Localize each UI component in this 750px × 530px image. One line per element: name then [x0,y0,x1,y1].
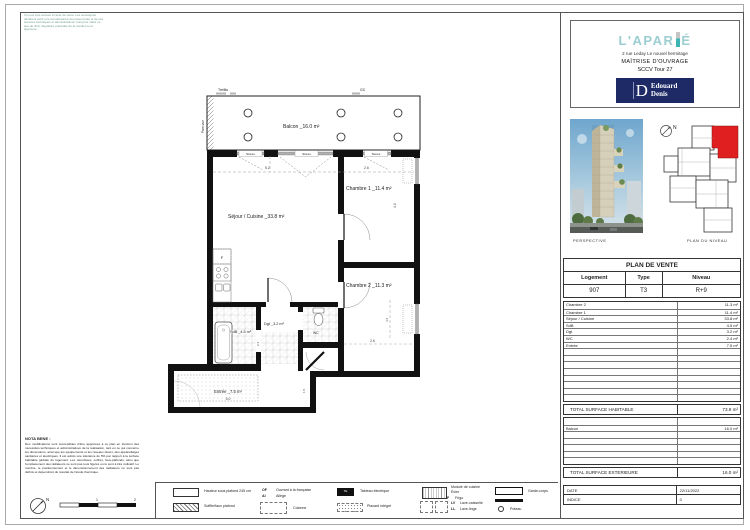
stores-label-1: Stores [246,152,255,156]
sdb-label: SdB _4.5 m² [230,330,252,334]
pare-vue-label: Pare-vue [201,120,205,133]
treillis-label: Treillis [218,88,228,92]
legend-gardecorps-icon [495,487,523,495]
total-exterior-value: 16.0 m² [678,470,740,475]
niveau-value: R+9 [663,285,740,297]
total-habitable-value: 73.9 m² [678,407,740,412]
type-value: T3 [626,285,663,297]
legend-gardecorps-bar-icon [495,499,523,502]
indice-value: 0 [677,497,740,502]
builder-initial: D [633,82,648,99]
dim-ch2-w: 2.6 [370,339,375,343]
niveau-north: N [673,125,677,131]
table-row: Chambre 111.4 m² [564,309,740,316]
table-row-empty [564,375,740,382]
table-row-empty [564,451,740,458]
table-row-empty [564,394,740,401]
perspective-label: PERSPECTIVE [573,238,607,243]
table-header-row: Logement Type Niveau [563,272,741,285]
legend-al-abbr: Al [262,495,266,499]
legend-module-icon [422,487,447,499]
legend-te-icon: TE [337,488,354,496]
total-exterior-row: TOTAL SURFACE EXTERIEURE 16.0 m² [563,467,741,478]
legend-ll-icon [435,501,448,513]
table-row-empty [564,418,740,425]
legend-evier-label: Évier [451,491,459,495]
legend-te-label: Tableau électrique [360,490,389,494]
table-title: PLAN DE VENTE [563,258,741,272]
table-row: Dgt3.2 m² [564,328,740,335]
kitchen: F [213,249,231,302]
indice-row: INDICE 0 [563,495,741,505]
balcony: Balcon _16.0 m² Treillis GC Pare-vue [201,88,420,150]
table-row-empty [564,388,740,395]
legend-ll-label: Lave-linge [460,508,477,512]
table-row: WC2.4 m² [564,335,740,342]
legend-hsp-icon [173,488,199,497]
dim-ch1-w: 2.6 [364,166,369,170]
legend: Hauteur sous plafond 245 cm Soffite/faux… [155,482,558,518]
table-row-empty [564,381,740,388]
rooms-table: Chambre 211.3 m² Chambre 111.4 m² Séjour… [563,301,741,402]
legend-gardecorps-label: Garde-corps [528,490,548,494]
scale-bar: 1 2 [60,498,136,507]
dgt-label: Dgt _3.2 m² [264,322,285,326]
moa-label: MAÎTRISE D'OUVRAGE [571,59,739,65]
plan-niveau-label: PLAN DU NIVEAU [687,238,727,243]
legend-frigo-label: Frigo [455,497,463,501]
legend-f-abbr: F [447,497,449,501]
legend-of-abbr: OF [262,489,267,493]
dim-dgt-h: 2.4 [256,341,260,346]
table-row-empty [564,431,740,438]
legend-ll-abbr: LL [451,508,455,512]
table-row-empty [564,361,740,368]
table-row: Séjour / Cuisine33.8 m² [564,315,740,322]
balcony-label: Balcon _16.0 m² [283,124,320,130]
nota-bene-text: Des modifications sont susceptibles d'êt… [25,442,139,474]
nota-bene-title: NOTA BENE : [25,436,139,441]
dim-ch1-h: 4.0 [393,203,397,208]
chambre2-label: Chambre 2 _11.3 m² [346,283,392,289]
date-value: 22/11/2022 [677,488,740,493]
sccv-label: SCCV Tour 27 [571,67,739,73]
compass-n: N [46,497,49,502]
table-row-empty [564,348,740,355]
stores-label-3: Stores [372,152,381,156]
col-logement: Logement [564,272,626,284]
legend-poteau-icon [498,506,504,512]
legend-al-label: Allège [276,495,286,499]
legend-placard-label: Placard intégré [367,505,391,509]
plan-de-vente-table: PLAN DE VENTE Logement Type Niveau 907 T… [563,258,741,505]
table-values-row: 907 T3 R+9 [563,285,741,298]
placard-entree [178,375,258,401]
plan-de-vente-sheet: { "stamp": { "text": "Vu pour être annex… [0,0,750,530]
dim-entree-w: 5.0 [226,397,231,401]
nota-bene: NOTA BENE : Des modifications sont susce… [25,436,139,474]
scale-2: 2 [134,498,136,502]
exterior-table: Balcon16.0 m² [563,417,741,465]
chambre1-label: Chambre 1 _11.4 m² [346,186,392,192]
date-row: DATE 22/11/2022 [563,485,741,495]
scale-1: 1 [96,498,98,502]
perspective-tower [570,119,643,233]
legend-lv-icon [420,501,433,513]
gc-label: GC [360,88,366,92]
legend-soffite-icon [173,503,199,512]
total-habitable-label: TOTAL SURFACE HABITABLE [564,405,678,414]
builder-name: Edouard Denis [651,83,677,98]
dim-sejour: 5.2 [265,166,270,170]
legend-lv-label: Lave-vaisselle [460,502,483,506]
date-label: DATE [564,486,677,494]
dim-ch2-h: 4.6 [385,317,389,322]
table-row: Chambre 211.3 m² [564,302,740,309]
title-block: L'APARÉ 2 rue Leday Le nouvel hermitage … [570,20,740,108]
compass: N [31,497,50,514]
logement-value: 907 [564,285,626,297]
dim-entree-h: 1.5 [302,388,306,393]
table-row-empty [564,368,740,375]
legend-of-label: Ouvrant à la française [276,489,311,493]
wc-label: WC [313,331,319,335]
legend-hsp-label: Hauteur sous plafond 245 cm [204,490,251,494]
total-habitable-row: TOTAL SURFACE HABITABLE 73.9 m² [563,404,741,415]
table-row-empty [564,444,740,451]
logo-bar-icon [676,32,680,47]
table-row: Balcon16.0 m² [564,425,740,432]
legend-soffite-label: Soffite/faux plafond [204,505,235,509]
table-row: SdB4.5 m² [564,322,740,329]
perspective-image [570,119,643,233]
project-address: 2 rue Leday Le nouvel hermitage [571,51,739,56]
legend-placard-icon [337,503,363,512]
table-row-empty [564,355,740,362]
legend-colonne-label: Colonne [293,507,306,511]
col-niveau: Niveau [663,272,740,284]
niveau-drawing: N [652,118,744,236]
logo-suffix: É [681,33,691,48]
logo-text: L'APAR [618,33,674,48]
table-row: Entrée7.5 m² [564,342,740,349]
table-row-empty [564,438,740,445]
legend-lv-abbr: LV [451,502,455,506]
date-indice-table: DATE 22/11/2022 INDICE 0 [563,485,741,505]
edouard-denis-logo: D Edouard Denis [616,78,694,103]
legend-poteau-label: Poteau [510,508,521,512]
entree-label: Entrée _7.5 m² [214,389,242,394]
stores-label-2: Stores [302,152,311,156]
sejour-label: Séjour / Cuisine _33.8 m² [228,214,285,220]
builder-line2: Denis [651,90,668,98]
col-type: Type [626,272,663,284]
plan-niveau: N [652,118,744,236]
table-row-empty [564,457,740,464]
legend-colonne-icon [260,502,287,514]
total-exterior-label: TOTAL SURFACE EXTERIEURE [564,468,678,477]
indice-label: INDICE [564,495,677,504]
aparte-logo: L'APARÉ [571,32,739,48]
